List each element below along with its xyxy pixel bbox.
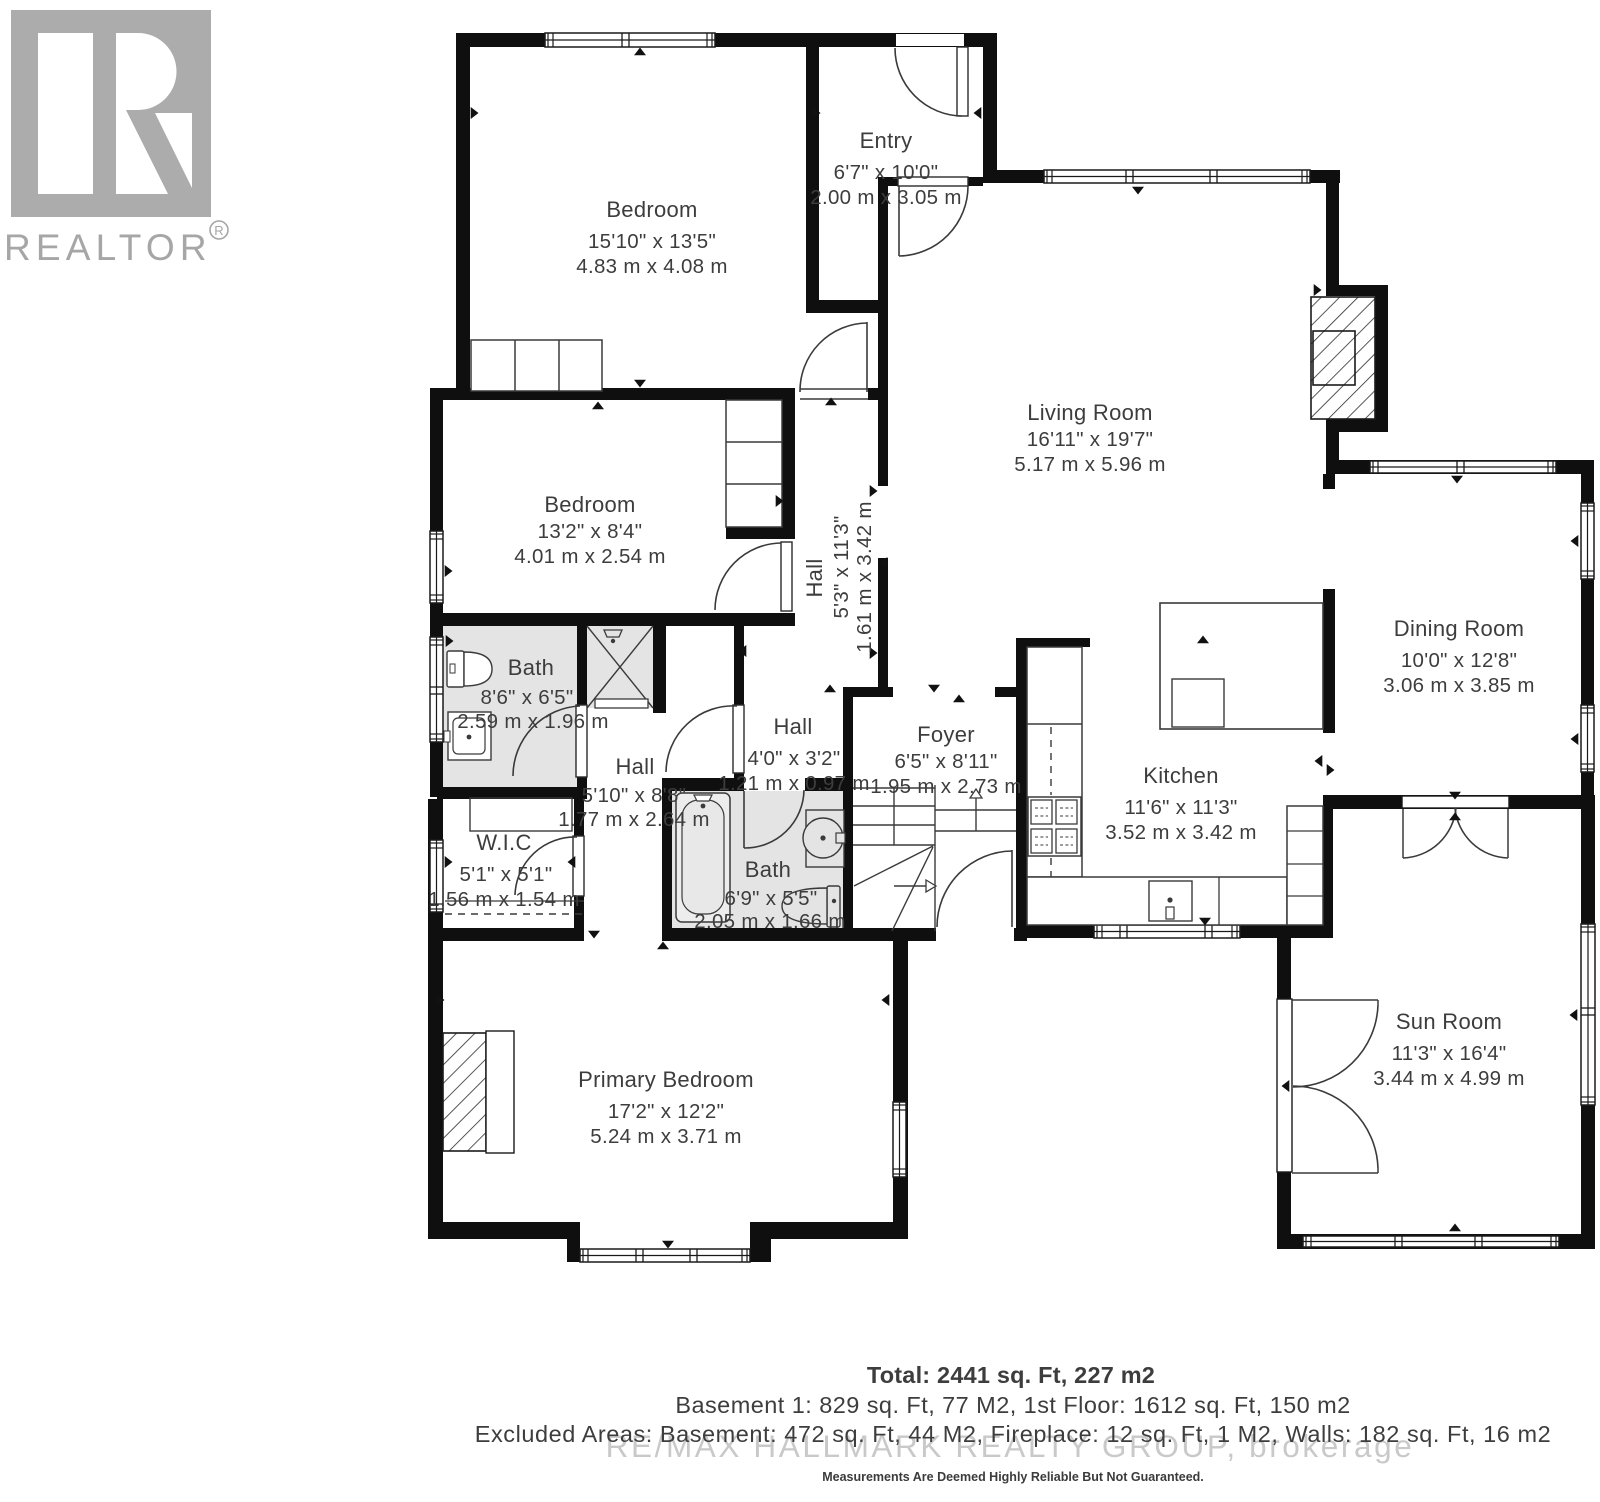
svg-text:Entry: Entry: [860, 128, 913, 153]
svg-text:2.00 m x 3.05 m: 2.00 m x 3.05 m: [810, 186, 961, 209]
svg-text:3.06 m x 3.85 m: 3.06 m x 3.85 m: [1383, 674, 1534, 697]
svg-text:5'10" x 8'8": 5'10" x 8'8": [582, 784, 687, 807]
svg-text:Hall: Hall: [615, 754, 654, 779]
svg-text:16'11" x 19'7": 16'11" x 19'7": [1027, 428, 1154, 451]
svg-text:11'6" x 11'3": 11'6" x 11'3": [1124, 796, 1237, 819]
svg-text:8'6" x 6'5": 8'6" x 6'5": [481, 686, 574, 709]
svg-text:6'7" x 10'0": 6'7" x 10'0": [834, 161, 939, 184]
svg-text:Bedroom: Bedroom: [606, 197, 697, 222]
svg-text:Bedroom: Bedroom: [544, 492, 635, 517]
svg-text:REALTOR: REALTOR: [4, 227, 212, 268]
svg-text:Bath: Bath: [508, 655, 554, 680]
svg-text:10'0" x 12'8": 10'0" x 12'8": [1401, 649, 1517, 672]
svg-text:Living Room: Living Room: [1027, 400, 1153, 425]
svg-text:Total: 2441 sq. Ft, 227 m2: Total: 2441 sq. Ft, 227 m2: [867, 1362, 1155, 1388]
svg-text:Dining Room: Dining Room: [1394, 616, 1524, 641]
svg-text:5.17 m x 5.96 m: 5.17 m x 5.96 m: [1014, 453, 1165, 476]
svg-text:Sun Room: Sun Room: [1396, 1009, 1502, 1034]
svg-text:Hall: Hall: [802, 558, 827, 597]
svg-text:4.01 m x 2.54 m: 4.01 m x 2.54 m: [514, 545, 665, 568]
svg-text:11'3" x 16'4": 11'3" x 16'4": [1392, 1042, 1507, 1065]
svg-text:1.21 m x 0.97 m: 1.21 m x 0.97 m: [718, 772, 869, 795]
svg-text:Hall: Hall: [773, 714, 812, 739]
svg-text:2.05 m x 1.66 m: 2.05 m x 1.66 m: [694, 910, 845, 933]
svg-text:Measurements Are Deemed Highly: Measurements Are Deemed Highly Reliable …: [822, 1470, 1204, 1484]
svg-text:W.I.C: W.I.C: [476, 830, 531, 855]
svg-text:6'5" x 8'11": 6'5" x 8'11": [894, 750, 997, 773]
svg-text:17'2" x 12'2": 17'2" x 12'2": [608, 1100, 724, 1123]
svg-text:13'2" x 8'4": 13'2" x 8'4": [538, 520, 643, 543]
svg-text:Primary Bedroom: Primary Bedroom: [578, 1067, 754, 1092]
svg-text:3.44 m x 4.99 m: 3.44 m x 4.99 m: [1373, 1067, 1524, 1090]
svg-text:Foyer: Foyer: [917, 722, 975, 747]
svg-text:1.77 m x 2.64 m: 1.77 m x 2.64 m: [558, 808, 709, 831]
svg-text:4.83 m x 4.08 m: 4.83 m x 4.08 m: [576, 255, 727, 278]
svg-text:Kitchen: Kitchen: [1143, 763, 1218, 788]
svg-text:Bath: Bath: [745, 857, 791, 882]
svg-text:6'9" x 5'5": 6'9" x 5'5": [725, 887, 818, 910]
svg-text:Basement 1: 829 sq. Ft, 77 M2,: Basement 1: 829 sq. Ft, 77 M2, 1st Floor…: [675, 1392, 1350, 1418]
svg-text:5'3" x 11'3": 5'3" x 11'3": [830, 515, 853, 618]
svg-text:Excluded Areas: Basement: 472: Excluded Areas: Basement: 472 sq. Ft, 44…: [475, 1421, 1552, 1447]
svg-text:15'10" x 13'5": 15'10" x 13'5": [588, 230, 716, 253]
svg-text:1.95 m x 2.73 m: 1.95 m x 2.73 m: [870, 775, 1021, 798]
svg-text:5.24 m x 3.71 m: 5.24 m x 3.71 m: [590, 1125, 741, 1148]
svg-text:5'1" x 5'1": 5'1" x 5'1": [460, 863, 553, 886]
svg-text:1.56 m x 1.54 m: 1.56 m x 1.54 m: [428, 888, 579, 911]
svg-text:1.61 m x 3.42 m: 1.61 m x 3.42 m: [853, 501, 876, 652]
svg-text:2.59 m x 1.96 m: 2.59 m x 1.96 m: [457, 710, 608, 733]
svg-text:3.52 m x 3.42 m: 3.52 m x 3.42 m: [1105, 821, 1256, 844]
svg-text:4'0" x 3'2": 4'0" x 3'2": [748, 747, 841, 770]
svg-text:R: R: [214, 223, 223, 238]
